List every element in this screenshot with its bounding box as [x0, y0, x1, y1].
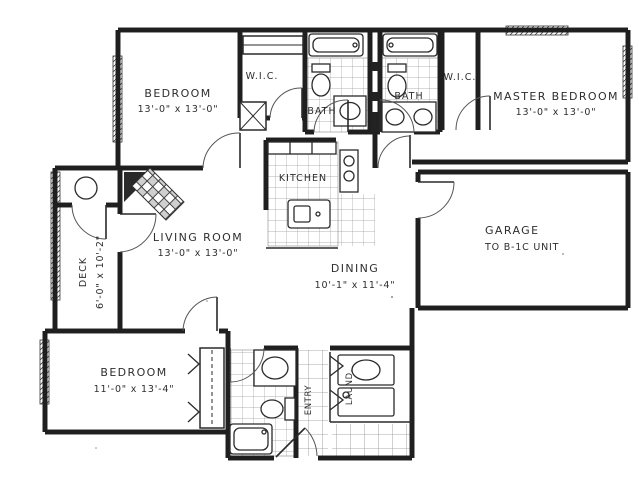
- linen-closet-x: [240, 102, 266, 130]
- bedroom-top-dims: 13'-0" x 13'-0": [138, 104, 219, 115]
- bedroom-top-label: BEDROOM: [144, 87, 211, 100]
- kitchen-cabinets: [268, 142, 336, 154]
- closet-lower-bedroom: [200, 348, 224, 428]
- dining-label: DINING: [331, 262, 379, 275]
- bath-right-label: BATH: [394, 91, 423, 102]
- kitchen-island-sink-icon: [288, 200, 330, 228]
- sink-icon: [254, 350, 296, 386]
- floor-plan-page: BEDROOM 13'-0" x 13'-0" W.I.C. BATH BATH…: [0, 0, 639, 479]
- refrigerator-counter-icon: [340, 150, 358, 192]
- toilet-icon: [312, 64, 330, 96]
- bathtub-icon: [383, 34, 437, 56]
- floor-plan-drawing: BEDROOM 13'-0" x 13'-0" W.I.C. BATH BATH…: [0, 0, 639, 479]
- bathtub-icon: [309, 34, 363, 56]
- closet-shelf-wic-left: [243, 36, 303, 54]
- double-vanity-icon: [382, 102, 436, 132]
- deck-dims: 6'-0" x 10'-2": [95, 235, 106, 309]
- garage-label: GARAGE: [485, 224, 539, 237]
- bedroom-lower-label: BEDROOM: [100, 366, 167, 379]
- bath-left-label: BATH: [307, 106, 336, 117]
- fireplace-icon: [124, 168, 184, 220]
- master-bedroom-label: MASTER BEDROOM: [493, 90, 619, 103]
- deck-table-icon: [75, 177, 97, 199]
- bedroom-lower-dims: 11'-0" x 13'-4": [94, 384, 175, 395]
- kitchen-label: KITCHEN: [279, 173, 327, 184]
- living-room-label: LIVING ROOM: [153, 231, 243, 244]
- garage-dims: TO B-1C UNIT: [484, 242, 559, 253]
- bathtub-icon: [230, 424, 272, 454]
- toilet-icon: [261, 398, 295, 420]
- deck-label: DECK: [78, 257, 89, 287]
- master-bedroom-dims: 13'-0" x 13'-0": [516, 107, 597, 118]
- wic-left-label: W.I.C.: [246, 71, 279, 82]
- wic-right-label: W.I.C.: [444, 72, 477, 83]
- laundry-label: LAUND.: [345, 369, 355, 405]
- dining-dims: 10'-1" x 11'-4": [315, 280, 396, 291]
- entry-label: ENTRY: [304, 385, 314, 416]
- living-room-dims: 13'-0" x 13'-0": [158, 248, 239, 259]
